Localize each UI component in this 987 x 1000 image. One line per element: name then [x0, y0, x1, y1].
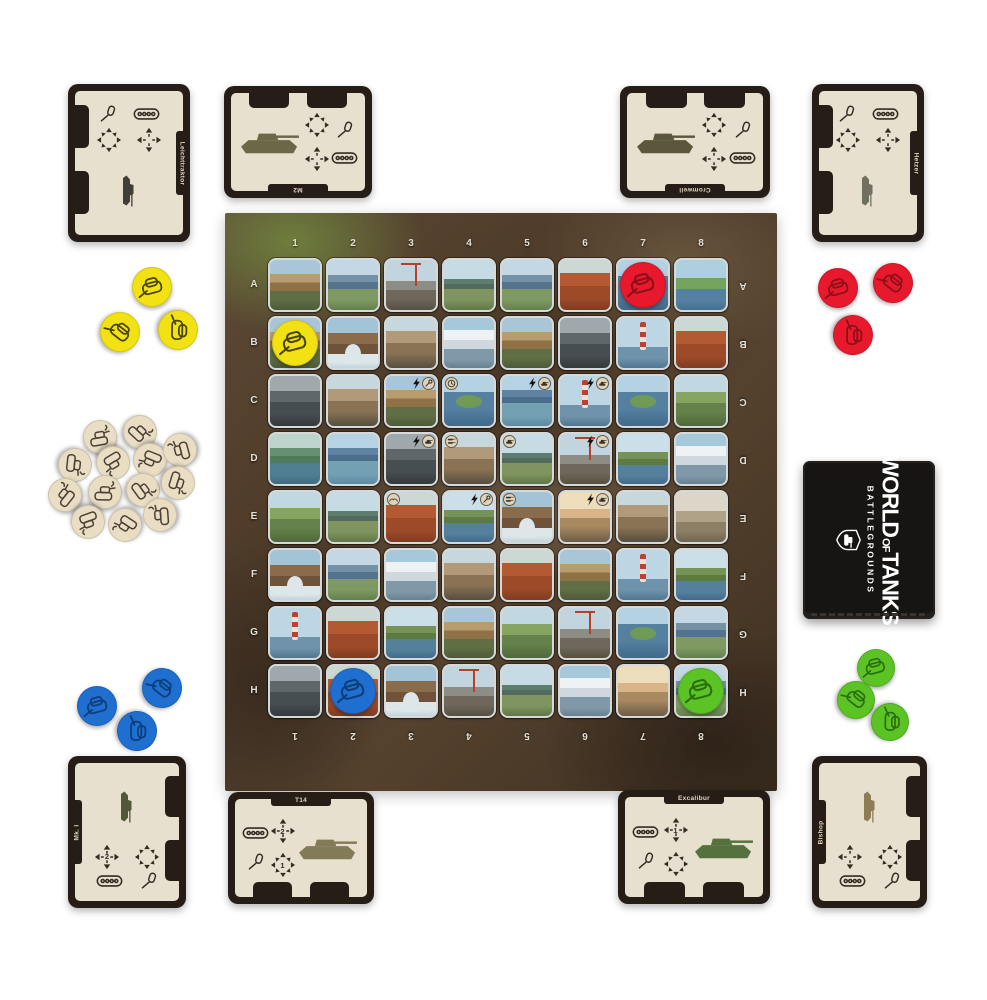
card-slot [310, 882, 349, 897]
row-label-left-E: E [245, 490, 263, 544]
tile-badges-E3 [387, 493, 400, 506]
equipment-column [632, 825, 659, 870]
row-label-left-F: F [245, 548, 263, 602]
wreck-token[interactable] [141, 496, 178, 533]
tanks-badge-icon [503, 493, 516, 506]
card-name: Bishop [817, 820, 824, 844]
tank-card-bottom-left[interactable]: Mk. I2 [68, 756, 186, 908]
tile-A5-mountain [500, 258, 554, 312]
stats-row: 2 [94, 844, 160, 870]
red-token[interactable] [818, 268, 858, 308]
tile-B2-arch [326, 316, 380, 370]
tile-H1-ruins [268, 664, 322, 718]
equipment-row [839, 871, 901, 890]
card-name: Leichttraktor [178, 141, 185, 185]
tile-badges-C5 [528, 377, 551, 390]
card-name: Hetzer [912, 152, 919, 174]
tile-D2-mountainlake [326, 432, 380, 486]
tile-D4-museum [442, 432, 496, 486]
tile-C2-museum [326, 374, 380, 428]
tile-B4-whiterock [442, 316, 496, 370]
yellow-token[interactable] [153, 305, 202, 354]
blue-token[interactable] [112, 706, 161, 755]
yellow-tank-token-B1[interactable] [272, 320, 318, 366]
card-content [828, 100, 908, 226]
column-label-top-4: 4 [442, 237, 496, 251]
tile-badges-C6 [586, 377, 609, 390]
tile-badges-D4 [445, 435, 458, 448]
card-content [84, 100, 174, 226]
column-label-top-6: 6 [558, 237, 612, 251]
tank-card-bottom-center-right[interactable]: Excalibur1 [618, 790, 770, 904]
move-icon [875, 127, 901, 153]
stats-column [701, 112, 727, 172]
lightning-icon [586, 493, 595, 506]
track-icon [242, 826, 269, 840]
wrench-badge-icon [422, 377, 435, 390]
column-label-bottom-1: 1 [268, 728, 322, 742]
green-tank-token-H8[interactable] [678, 668, 724, 714]
move-icon [701, 146, 727, 172]
move-value: 2 [270, 818, 296, 844]
tile-D3-ruins [384, 432, 438, 486]
lightning-icon [412, 435, 421, 448]
tank-card-bottom-right[interactable]: Bishop [812, 756, 927, 908]
eagle-badge-icon [387, 493, 400, 506]
logo-tanks-text: TANKS [879, 552, 902, 625]
stats-row [837, 844, 903, 870]
row-label-left-C: C [245, 374, 263, 428]
column-label-top-7: 7 [616, 237, 670, 251]
tile-D5-bridge [500, 432, 554, 486]
tile-E4-cliff [442, 490, 496, 544]
move-value [701, 146, 727, 172]
tank-card-top-left[interactable]: Leichttraktor [68, 84, 190, 242]
move-icon: 1 [663, 817, 689, 843]
card-name: Cromwell [679, 186, 711, 193]
tile-E7-museum [616, 490, 670, 544]
tile-A6-poppy [558, 258, 612, 312]
track-icon [331, 151, 358, 165]
equipment-row [98, 104, 160, 123]
tile-A4-bridge [442, 258, 496, 312]
tile-D8-whiterock [674, 432, 728, 486]
wot-logo: WORLDOFTANKS [879, 455, 902, 625]
attack-icon [877, 844, 903, 870]
attack-value [96, 127, 122, 153]
card-name-tab: M2 [268, 184, 328, 195]
tile-B5-castle [500, 316, 554, 370]
tile-badges-D6 [586, 435, 609, 448]
clock-badge-icon [445, 377, 458, 390]
row-label-right-A: A [734, 258, 752, 312]
lightning-icon [586, 377, 595, 390]
wreck-token[interactable] [162, 432, 199, 469]
tank-illustration [634, 128, 698, 156]
attack-value [304, 112, 330, 138]
move-icon: 2 [94, 844, 120, 870]
attack-icon [134, 844, 160, 870]
tile-C5-mountainlake [500, 374, 554, 428]
tank-card-right[interactable]: Hetzer [812, 84, 924, 242]
lightning-icon [470, 493, 479, 506]
equipment-column [729, 120, 756, 165]
tile-F2-mountain [326, 548, 380, 602]
red-token[interactable] [828, 310, 877, 359]
tile-H5-bridge [500, 664, 554, 718]
move-value [837, 844, 863, 870]
attack-value [701, 112, 727, 138]
tile-C3-castle [384, 374, 438, 428]
tile-G8-mountain [674, 606, 728, 660]
tile-badges-C4 [445, 377, 458, 390]
tile-G6-crane [558, 606, 612, 660]
product-photo-stage: 1122334455667788AABBCCDDEEFFGGHH WORLDOF… [0, 0, 987, 1000]
card-slot [819, 105, 833, 148]
column-label-bottom-3: 3 [384, 728, 438, 742]
card-slot [646, 93, 687, 108]
attack-value [877, 844, 903, 870]
tile-E1-village [268, 490, 322, 544]
card-name: Excalibur [678, 795, 710, 802]
column-label-bottom-7: 7 [616, 728, 670, 742]
card-name-tab: Excalibur [664, 793, 724, 804]
track-icon [839, 874, 866, 888]
equipment-column [242, 826, 269, 871]
column-label-top-1: 1 [268, 237, 322, 251]
column-label-bottom-2: 2 [326, 728, 380, 742]
stats-column [304, 112, 330, 172]
red-token[interactable] [865, 255, 921, 311]
tile-G4-castle [442, 606, 496, 660]
tank-illustration [110, 772, 144, 842]
attack-icon [96, 127, 122, 153]
card-name-tab: Cromwell [665, 184, 725, 195]
tile-badges-E6 [586, 493, 609, 506]
tank-card-bottom-center-left[interactable]: T1421 [228, 792, 374, 904]
card-name: Mk. I [73, 824, 80, 840]
tile-B6-ruins [558, 316, 612, 370]
tile-H7-sunrise [616, 664, 670, 718]
gun-icon [733, 120, 752, 139]
track-icon [872, 107, 899, 121]
card-content [634, 104, 756, 180]
column-label-top-2: 2 [326, 237, 380, 251]
attack-icon [663, 851, 689, 877]
move-value [136, 127, 162, 153]
row-label-left-G: G [245, 606, 263, 660]
tile-badges-D5 [503, 435, 516, 448]
row-label-left-D: D [245, 432, 263, 486]
lightning-icon [586, 435, 595, 448]
tile-D6-crane [558, 432, 612, 486]
tank-card-top-center[interactable]: M2 [224, 86, 372, 198]
card-slot [253, 882, 292, 897]
tile-C7-lake [616, 374, 670, 428]
card-slot [165, 840, 179, 881]
attack-icon: 1 [270, 852, 296, 878]
card-slot [703, 882, 744, 897]
tile-G3-cliff [384, 606, 438, 660]
gun-icon [139, 871, 158, 890]
card-name-tab: Leichttraktor [176, 131, 187, 195]
attack-icon [304, 112, 330, 138]
battlegrounds-subtitle: BATTLEGROUNDS [866, 486, 876, 595]
gun-icon [98, 104, 117, 123]
card-slot [165, 776, 179, 817]
tile-badges-E4 [470, 493, 493, 506]
move-value: 1 [663, 817, 689, 843]
attack-value [663, 851, 689, 877]
card-content: 2 [84, 772, 170, 892]
blue-token[interactable] [134, 660, 190, 716]
tank-badge-icon [503, 435, 516, 448]
card-slot [249, 93, 289, 108]
card-deck-box[interactable]: WORLDOFTANKS BATTLEGROUNDS [803, 461, 935, 619]
tile-F5-poppy [500, 548, 554, 602]
tile-G7-lake [616, 606, 670, 660]
tank-badge-icon [538, 377, 551, 390]
wrench-badge-icon [480, 493, 493, 506]
tank-card-top-right[interactable]: Cromwell [620, 86, 770, 198]
tank-badge-icon [596, 435, 609, 448]
tile-E6-sunrise [558, 490, 612, 544]
tanks-badge-icon [445, 435, 458, 448]
tile-C6-lighthouse [558, 374, 612, 428]
tile-G1-lighthouse [268, 606, 322, 660]
logo-world-text: WORLD [879, 455, 902, 537]
move-value [304, 146, 330, 172]
tile-G5-village [500, 606, 554, 660]
tile-A2-mountain [326, 258, 380, 312]
gun-icon [335, 120, 354, 139]
card-slot [75, 171, 89, 214]
track-icon [133, 107, 160, 121]
blue-tank-token-H2[interactable] [330, 668, 376, 714]
gun-icon [246, 852, 265, 871]
tile-B7-lighthouse [616, 316, 670, 370]
yellow-token[interactable] [132, 267, 172, 307]
tile-F7-lighthouse [616, 548, 670, 602]
move-icon: 2 [270, 818, 296, 844]
tile-H4-crane [442, 664, 496, 718]
row-label-left-B: B [245, 316, 263, 370]
tile-D7-cliff [616, 432, 670, 486]
card-name: T14 [295, 797, 307, 804]
tank-illustration [851, 156, 885, 226]
card-name-tab: Hetzer [910, 131, 921, 195]
red-tank-token-A7[interactable] [620, 262, 666, 308]
move-icon [304, 146, 330, 172]
tank-illustration [692, 833, 756, 861]
tile-E5-arch [500, 490, 554, 544]
column-label-bottom-6: 6 [558, 728, 612, 742]
stats-row [96, 127, 162, 153]
attack-value [835, 127, 861, 153]
tile-A1-castle [268, 258, 322, 312]
logo-of-text: OF [880, 537, 891, 552]
card-slot [644, 882, 685, 897]
equipment-row [96, 871, 158, 890]
card-name-tab: T14 [271, 795, 331, 806]
tile-H6-whiterock [558, 664, 612, 718]
attack-value [134, 844, 160, 870]
row-label-right-F: F [734, 548, 752, 602]
card-name-tab: Mk. I [71, 800, 82, 864]
column-label-top-5: 5 [500, 237, 554, 251]
tile-C4-lake [442, 374, 496, 428]
row-label-left-H: H [245, 664, 263, 718]
tile-B3-museum [384, 316, 438, 370]
track-icon [729, 151, 756, 165]
card-name-tab: Bishop [815, 800, 826, 864]
tank-illustration [853, 772, 887, 842]
tile-G2-poppy [326, 606, 380, 660]
tile-F4-museum [442, 548, 496, 602]
track-icon [632, 825, 659, 839]
move-value [875, 127, 901, 153]
tile-A3-crane [384, 258, 438, 312]
blue-token[interactable] [77, 686, 117, 726]
move-icon [136, 127, 162, 153]
tile-E3-poppy [384, 490, 438, 544]
tile-C1-ruins [268, 374, 322, 428]
yellow-token[interactable] [92, 304, 148, 360]
tank-emblem-icon [836, 527, 862, 553]
tile-badges-D3 [412, 435, 435, 448]
tile-E2-bridge [326, 490, 380, 544]
gun-icon [882, 871, 901, 890]
column-label-top-3: 3 [384, 237, 438, 251]
equipment-column [331, 120, 358, 165]
tile-D1-river [268, 432, 322, 486]
game-board: 1122334455667788AABBCCDDEEFFGGHH [225, 213, 777, 791]
tile-badges-C3 [412, 377, 435, 390]
card-slot [704, 93, 745, 108]
tank-illustration [296, 834, 360, 862]
attack-value: 1 [270, 852, 296, 878]
stats-column: 1 [663, 817, 689, 877]
tank-illustration [238, 128, 302, 156]
card-slot [906, 776, 920, 817]
attack-icon [835, 127, 861, 153]
lightning-icon [412, 377, 421, 390]
tile-F6-castle [558, 548, 612, 602]
stats-row [835, 127, 901, 153]
column-label-bottom-4: 4 [442, 728, 496, 742]
tank-badge-icon [422, 435, 435, 448]
column-label-top-8: 8 [674, 237, 728, 251]
card-slot [307, 93, 347, 108]
deck-box-artwork: WORLDOFTANKS BATTLEGROUNDS [807, 465, 932, 615]
tank-illustration [112, 156, 146, 226]
card-slot [819, 171, 833, 214]
card-slot [906, 840, 920, 881]
move-value: 2 [94, 844, 120, 870]
row-label-right-G: G [734, 606, 752, 660]
card-content: 1 [632, 808, 756, 886]
row-label-right-B: B [734, 316, 752, 370]
lightning-icon [528, 377, 537, 390]
tile-F3-whiterock [384, 548, 438, 602]
row-label-right-E: E [734, 490, 752, 544]
card-slot [75, 105, 89, 148]
tile-A8-island [674, 258, 728, 312]
column-label-bottom-8: 8 [674, 728, 728, 742]
tank-badge-icon [596, 493, 609, 506]
row-label-right-H: H [734, 664, 752, 718]
stats-column: 21 [270, 818, 296, 878]
equipment-row [837, 104, 899, 123]
row-label-left-A: A [245, 258, 263, 312]
card-content [238, 104, 358, 180]
tank-badge-icon [596, 377, 609, 390]
row-label-right-D: D [734, 432, 752, 486]
gun-icon [837, 104, 856, 123]
tile-B8-poppy [674, 316, 728, 370]
tile-H3-arch [384, 664, 438, 718]
tile-badges-E5 [503, 493, 516, 506]
column-label-bottom-5: 5 [500, 728, 554, 742]
tile-F8-cliff [674, 548, 728, 602]
card-content: 21 [242, 810, 360, 886]
tile-E8-dusty [674, 490, 728, 544]
move-icon [837, 844, 863, 870]
row-label-right-C: C [734, 374, 752, 428]
gun-icon [636, 851, 655, 870]
card-name: M2 [293, 186, 303, 193]
track-icon [96, 874, 123, 888]
attack-icon [701, 112, 727, 138]
tile-F1-arch [268, 548, 322, 602]
card-content [828, 772, 911, 892]
tile-C8-village [674, 374, 728, 428]
